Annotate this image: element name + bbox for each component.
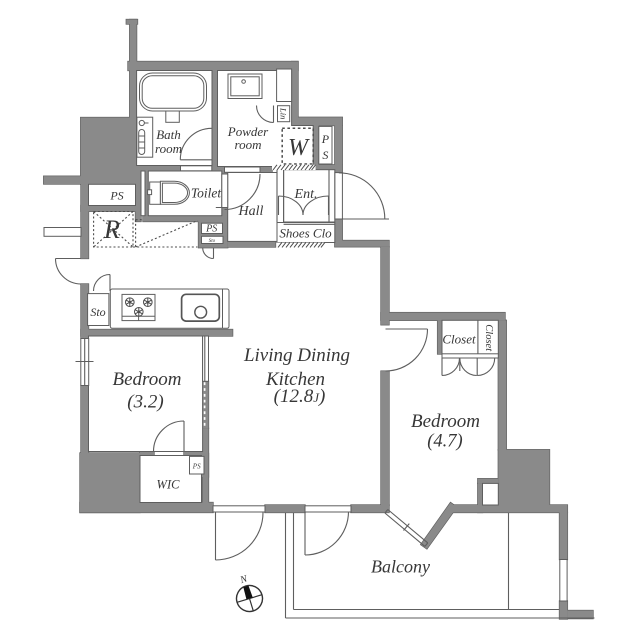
svg-text:PS: PS [205, 224, 217, 235]
svg-text:room: room [155, 141, 182, 156]
svg-text:R: R [103, 215, 120, 244]
svg-text:Closet: Closet [483, 324, 494, 352]
svg-text:P: P [321, 132, 330, 146]
svg-text:(4.7): (4.7) [427, 432, 462, 452]
svg-text:WIC: WIC [157, 478, 181, 492]
svg-text:W: W [288, 135, 310, 161]
svg-text:room: room [235, 137, 262, 152]
svg-text:(3.2): (3.2) [127, 392, 163, 413]
svg-text:(12.8J): (12.8J) [274, 386, 326, 407]
svg-text:Lin: Lin [278, 107, 288, 119]
svg-text:Living Dining: Living Dining [243, 345, 350, 366]
svg-text:Ent.: Ent. [294, 187, 318, 202]
svg-text:Toilet: Toilet [191, 186, 223, 201]
svg-text:Hall: Hall [238, 204, 264, 219]
svg-text:S: S [322, 148, 328, 162]
svg-text:Sto: Sto [209, 239, 216, 244]
svg-text:Bath: Bath [156, 127, 181, 142]
svg-text:Sto: Sto [90, 305, 105, 319]
svg-text:Bedroom: Bedroom [113, 369, 182, 390]
svg-text:Balcony: Balcony [371, 557, 430, 577]
svg-text:PS: PS [109, 189, 123, 203]
svg-text:Bedroom: Bedroom [411, 411, 480, 432]
svg-text:Shoes Clo: Shoes Clo [279, 226, 332, 241]
svg-text:Closet: Closet [442, 332, 476, 347]
svg-text:PS: PS [192, 463, 201, 471]
